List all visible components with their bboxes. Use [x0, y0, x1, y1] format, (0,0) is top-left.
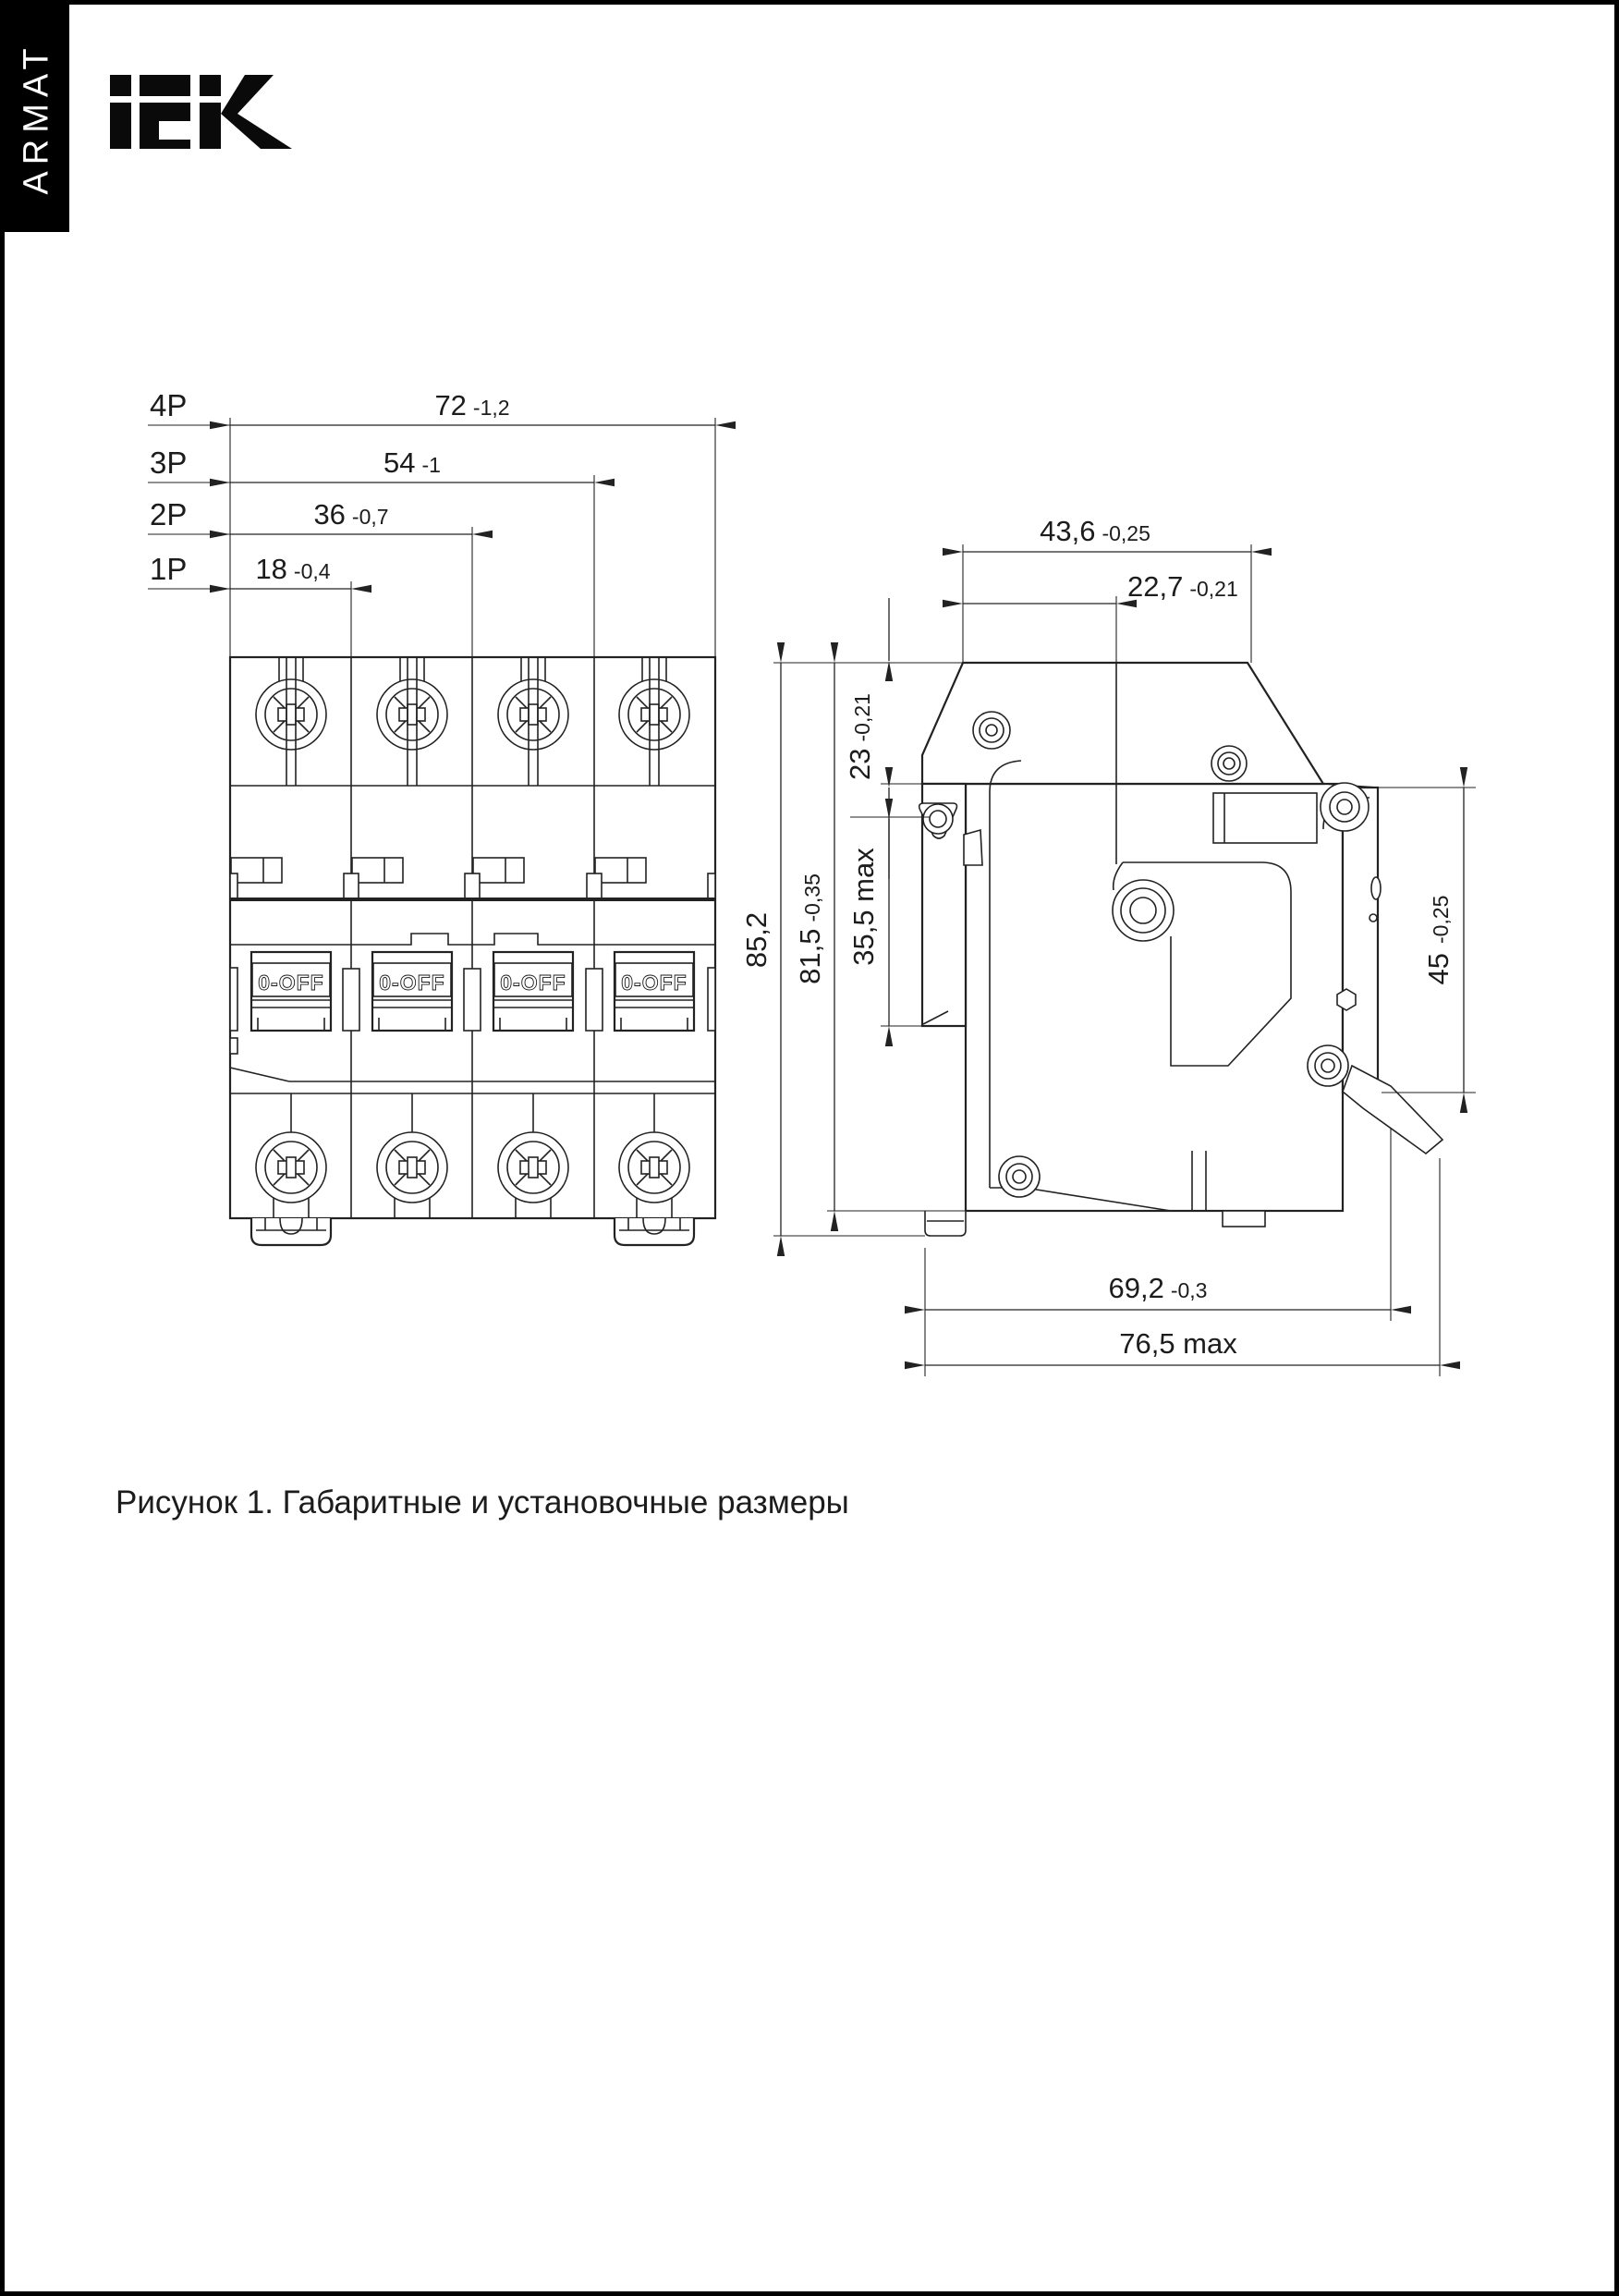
- dim-width-4p: 72-1,2: [434, 389, 509, 421]
- din-latch: [1343, 1066, 1442, 1154]
- pole-label-3p: 3P: [150, 446, 187, 480]
- figure-caption: Рисунок 1. Габаритные и установочные раз…: [116, 1484, 849, 1520]
- front-foot: [925, 1211, 966, 1236]
- rear-foot: [1223, 1211, 1265, 1227]
- dim-width-3p: 54-1: [383, 446, 441, 479]
- dim-width-1p: 18-0,4: [255, 553, 330, 585]
- front-din-clips: [251, 1218, 694, 1245]
- pole-label-4p: 4P: [150, 388, 187, 422]
- pole-label-1p: 1P: [150, 552, 187, 586]
- front-view-drawing: 0-OFF 0-OFF 0-OFF 0-OFF: [230, 657, 715, 1245]
- dim-mounting-depth: 69,2-0,3: [1109, 1272, 1208, 1304]
- switch-position-label: 0-OFF: [500, 971, 566, 995]
- switch-position-label: 0-OFF: [258, 971, 323, 995]
- dim-top-inset: 22,7-0,21: [1127, 570, 1238, 603]
- dim-overall-height: 85,2: [740, 912, 773, 968]
- front-dimensions: 4P 3P 2P 1P 72-1,2 54-1 36-0,7 18-0,4: [148, 388, 715, 657]
- dim-din-recess: 45-0,25: [1422, 896, 1455, 985]
- switch-position-label: 0-OFF: [379, 971, 444, 995]
- dim-top-width: 43,6-0,25: [1040, 515, 1150, 547]
- dim-handle-zone: 35,5 max: [847, 848, 880, 966]
- dim-width-2p: 36-0,7: [313, 498, 388, 531]
- switch-position-label: 0-OFF: [621, 971, 687, 995]
- dim-overall-depth: 76,5 max: [1119, 1327, 1237, 1360]
- datasheet-page: ARMAT iEK: [0, 0, 1619, 2296]
- dim-upper-depth: 23-0,21: [844, 693, 876, 780]
- technical-drawing: 0-OFF 0-OFF 0-OFF 0-OFF: [5, 5, 1619, 2296]
- dim-body-height: 81,5-0,35: [794, 873, 826, 984]
- pole-label-2p: 2P: [150, 497, 187, 531]
- side-view-drawing: [919, 663, 1442, 1236]
